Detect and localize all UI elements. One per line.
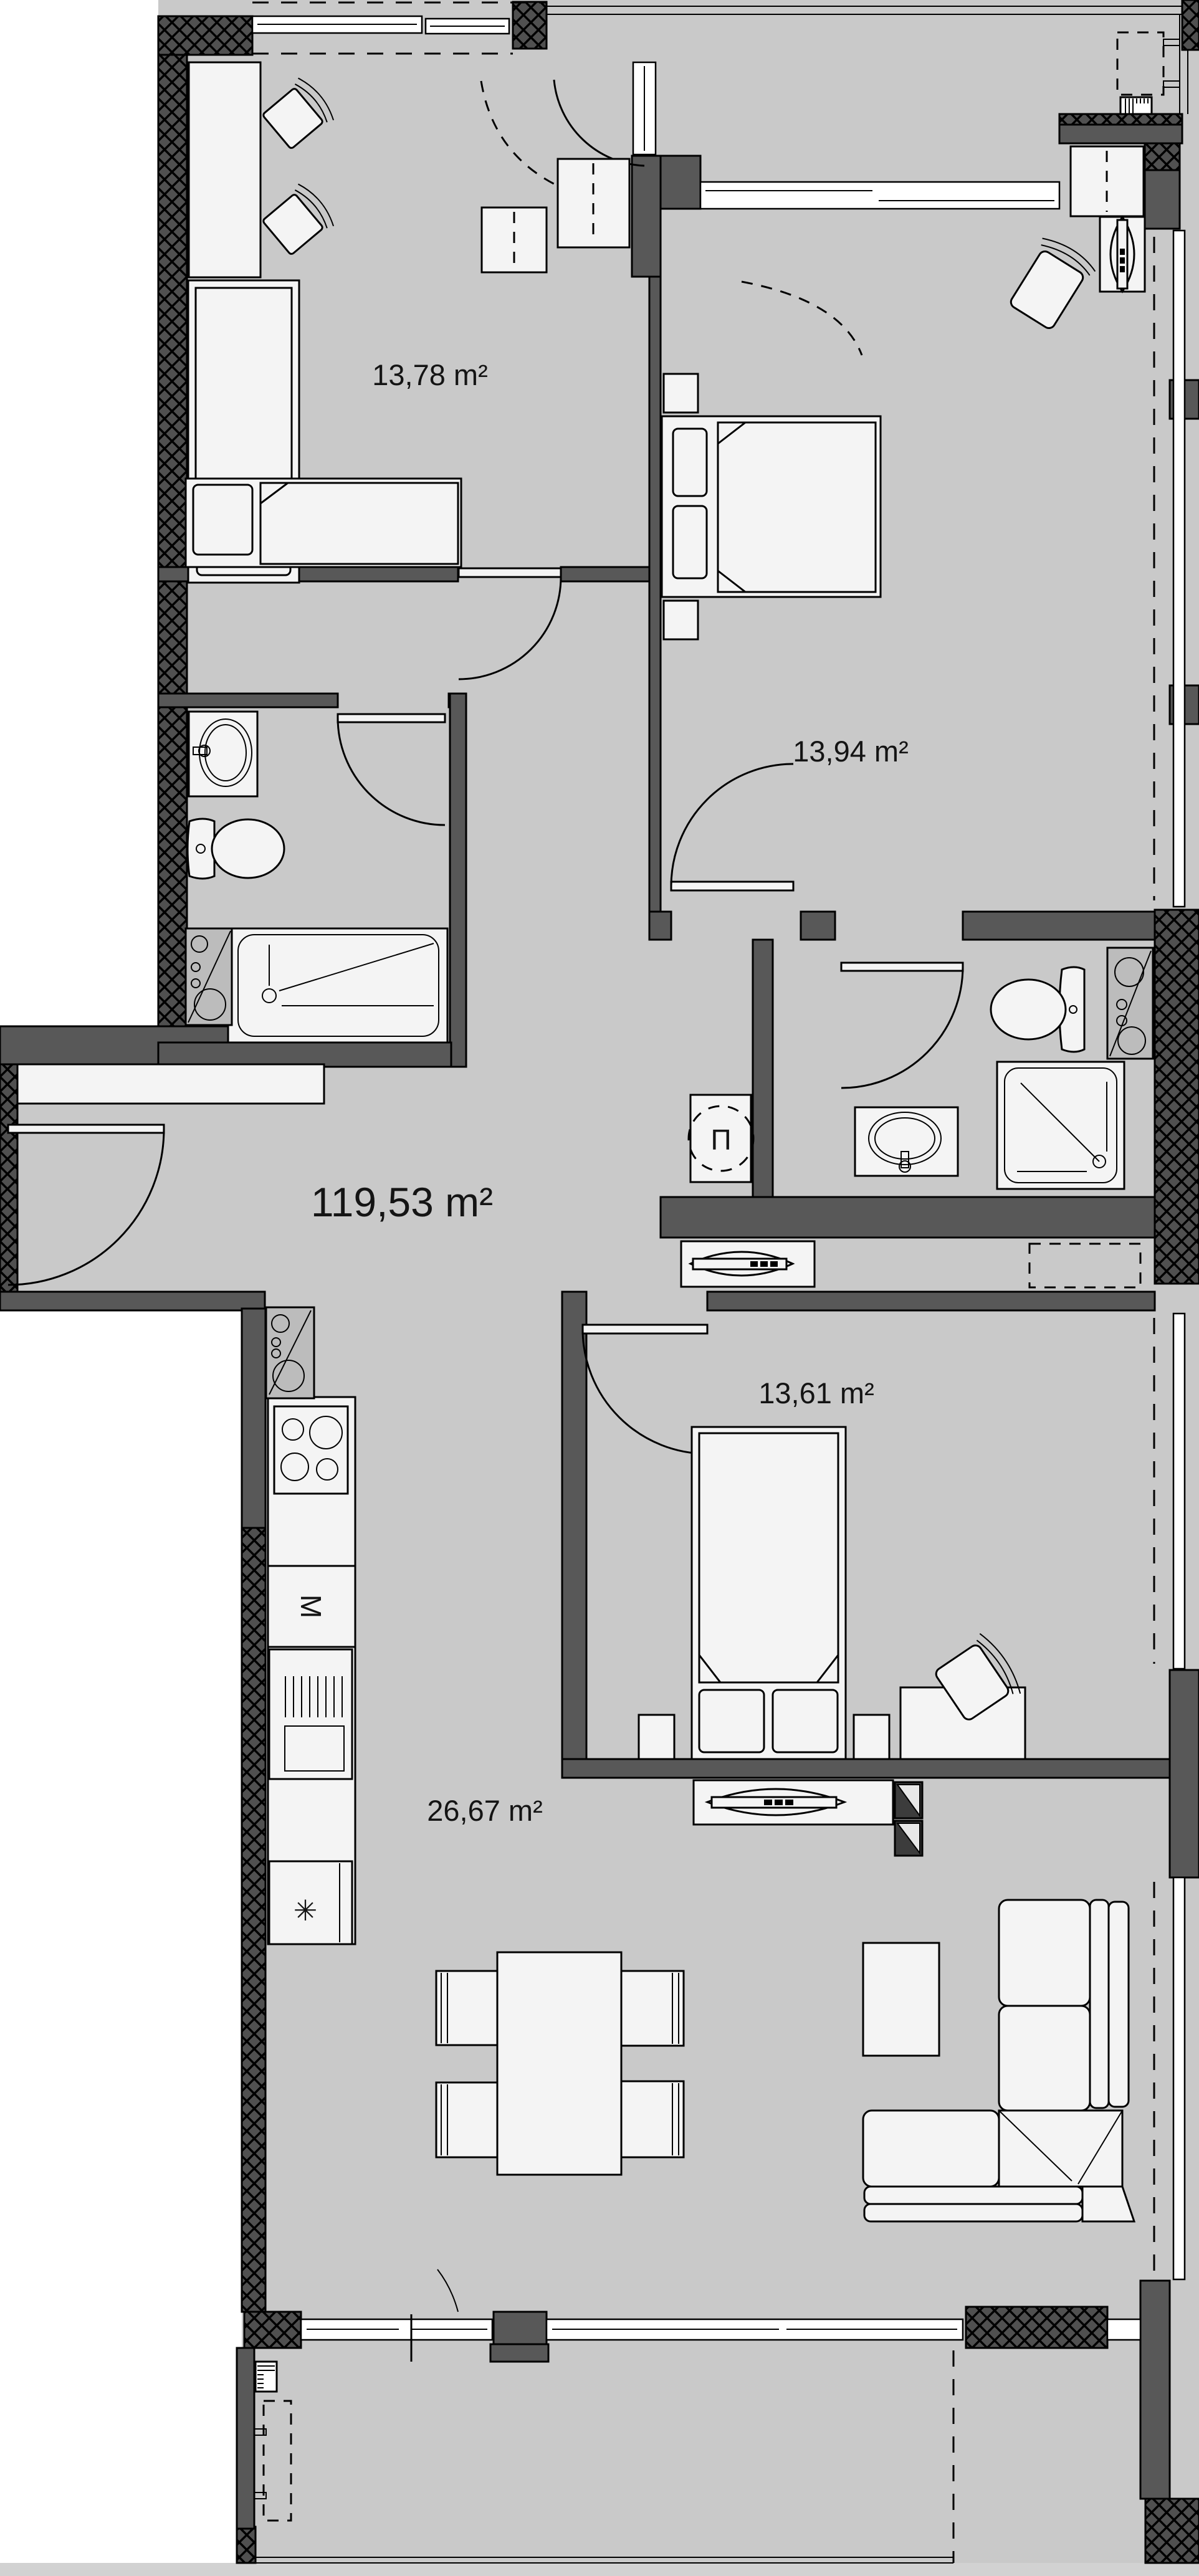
balcony-drain-icon [256, 2362, 277, 2392]
bathtub [228, 928, 447, 1042]
dining-chair [621, 1971, 684, 2046]
dining-chair [436, 1971, 497, 2045]
room-area-label: 13,78 m² [372, 358, 487, 391]
washbasin [189, 712, 257, 796]
outside-left-top [0, 0, 158, 1026]
shoe-cabinet [895, 1782, 922, 1856]
single-bed [186, 479, 461, 567]
oven-unit [269, 1649, 352, 1779]
dining-chair [436, 2082, 497, 2157]
washing-machine [1107, 948, 1153, 1059]
washing-machine [186, 928, 232, 1025]
nightstand [639, 1715, 674, 1759]
double-bed [662, 416, 881, 597]
room-area-label: 13,61 m² [758, 1376, 874, 1410]
toilet [188, 819, 284, 879]
stove [274, 1406, 348, 1494]
shower [997, 1062, 1124, 1189]
nightstand [664, 374, 698, 413]
washing-machine-symbol: П [710, 1123, 731, 1156]
nightstand [854, 1715, 889, 1759]
double-bed [692, 1427, 846, 1759]
kitchen: M ✳ [266, 1307, 355, 1944]
fridge: ✳ [269, 1861, 352, 1944]
floor-plan-page: П [0, 0, 1199, 2576]
nightstand [664, 601, 698, 639]
microwave-symbol: M [295, 1595, 327, 1618]
total-area-label: 119,53 m² [311, 1179, 493, 1225]
floor-plan-drawing: П [0, 0, 1199, 2576]
room-area-label: 26,67 m² [427, 1794, 542, 1827]
outside-left-bottom [0, 1310, 242, 2576]
coffee-table [863, 1943, 939, 2056]
dining-table [497, 1952, 621, 2175]
tv-console [681, 1241, 814, 1287]
room-area-label: 13,94 m² [793, 735, 908, 768]
tv-console [1100, 217, 1145, 292]
entry-landing-strip [17, 1064, 324, 1104]
washbasin [855, 1107, 958, 1176]
fridge-symbol: ✳ [294, 1894, 318, 1927]
washing-machine-p: П [689, 1095, 753, 1182]
kitchen-sink [266, 1307, 314, 1398]
outside-bottom-strip [0, 2563, 1199, 2576]
tv-console [694, 1780, 893, 1825]
desk [189, 62, 260, 277]
dining-chair [621, 2081, 684, 2157]
